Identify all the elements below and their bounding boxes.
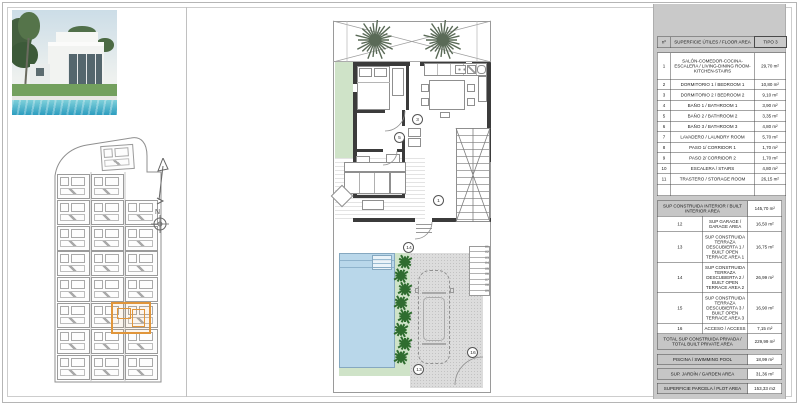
- summary-table: PISCINA / SWIMMING POOL18,99 m²: [657, 354, 782, 365]
- area-row: TOTAL SUP CONSTRUIDA PRIVADA / TOTAL BUI…: [657, 334, 782, 350]
- chair: [440, 112, 450, 118]
- built-areas-table: SUP CONSTRUIDA INTERIOR / BUILT INTERIOR…: [657, 201, 782, 350]
- area-row: 12SUP GARAGE / GARAGE AREA16,50 m²: [657, 216, 782, 232]
- wall: [353, 195, 405, 198]
- sofa-cushions: [344, 172, 390, 194]
- area-row: 8PASO 1/ CORRIDOR 11,70 m²: [657, 142, 786, 153]
- summary-table: SUPERFICIE PARCELA / PLOT AREA153,33 m2: [657, 383, 782, 394]
- pillow: [359, 68, 372, 77]
- site-plan-unit: [125, 277, 158, 302]
- site-plan-unit: [57, 303, 90, 328]
- area-row: SUP CONSTRUIDA INTERIOR / BUILT INTERIOR…: [657, 201, 782, 217]
- bed-line: [357, 82, 390, 83]
- summary-table: SUP. JARDÍN / GARDEN AREA31,36 m²: [657, 369, 782, 380]
- laundry-unit: [408, 128, 421, 137]
- wall: [353, 218, 415, 222]
- summary-tables: PISCINA / SWIMMING POOL18,99 m²SUP. JARD…: [657, 354, 782, 394]
- highlighted-unit: [111, 302, 151, 334]
- room-marker-1: 1: [433, 195, 444, 206]
- header-description: SUPERFICIE ÚTILES / FLOOR AREA: [671, 37, 755, 48]
- area-row: 2DORMITORIO 1 / BEDROOM 110,80 m²: [657, 79, 786, 90]
- area-row: 7LAVADERO / LAUNDRY ROOM5,70 m²: [657, 132, 786, 143]
- room-marker-3: 3: [412, 114, 423, 125]
- wall: [402, 110, 405, 126]
- area-row: 16ACCESO / ACCESS7,15 m²: [657, 323, 782, 334]
- column-divider-line: [186, 7, 187, 397]
- site-plan-unit: [100, 144, 135, 171]
- site-plan-unit: [91, 251, 124, 276]
- area-row: 1SALÓN-COMEDOR-COCINA-ESCALERA / LIVING-…: [657, 53, 786, 80]
- area-row: 10ESCALERA / STAIRS4,80 m²: [657, 163, 786, 174]
- wardrobe: [392, 68, 404, 96]
- site-plan-unit: [91, 226, 124, 251]
- terrace-step: [416, 228, 432, 229]
- lawn: [12, 84, 117, 96]
- plan-sheet: N: [0, 0, 800, 406]
- site-plan-unit: [57, 355, 90, 380]
- terrace-step: [416, 224, 432, 225]
- room-marker-13: 13: [413, 364, 424, 375]
- north-arrow-icon: N: [147, 158, 177, 236]
- room-marker-5: 5: [394, 132, 405, 143]
- side-garden: [335, 62, 353, 158]
- useful-areas-table: 1SALÓN-COMEDOR-COCINA-ESCALERA / LIVING-…: [657, 53, 786, 197]
- site-plan: N: [35, 132, 180, 394]
- chair: [421, 98, 429, 106]
- villa-fascia: [48, 42, 104, 46]
- floor-plan: 010203040506070809 135131416: [328, 10, 500, 400]
- sofa-back: [344, 162, 406, 172]
- site-plan-unit: [91, 200, 124, 225]
- area-row: PISCINA / SWIMMING POOL18,99 m²: [657, 354, 782, 365]
- area-row: 9PASO 2/ CORRIDOR 21,70 m²: [657, 153, 786, 164]
- room-marker-14: 14: [403, 242, 414, 253]
- chair: [467, 84, 475, 92]
- oven: [467, 65, 476, 74]
- site-plan-unit: [57, 226, 90, 251]
- terrace-step: [416, 232, 432, 233]
- header-type: TIPO 3: [755, 37, 787, 48]
- area-table-header: nº SUPERFICIE ÚTILES / FLOOR AREA TIPO 3: [657, 36, 787, 48]
- villa-glazing: [68, 54, 102, 86]
- wall: [406, 62, 409, 110]
- swimming-pool: [339, 253, 395, 368]
- villa-small-window: [36, 68, 44, 76]
- area-table-panel: nº SUPERFICIE ÚTILES / FLOOR AREA TIPO 3…: [653, 4, 786, 399]
- area-row: 15SUP CONSTRUIDA TERRAZA DESCUBIERTA 3 /…: [657, 293, 782, 324]
- header-no: nº: [657, 37, 671, 48]
- coffee-table: [362, 200, 384, 210]
- pillow: [374, 68, 387, 77]
- area-row: [657, 184, 786, 196]
- area-row: 11TRASTERO / STORAGE ROOM26,15 m²: [657, 174, 786, 185]
- site-plan-unit: [57, 251, 90, 276]
- pool-water: [12, 100, 117, 115]
- stair-step-numbers: 010203040506070809: [469, 246, 490, 296]
- car-mirror: [415, 288, 419, 293]
- site-plan-unit: [57, 174, 90, 199]
- car-mirror: [450, 288, 454, 293]
- area-row: 3DORMITORIO 2 / BEDROOM 29,10 m²: [657, 90, 786, 101]
- area-row: 13SUP CONSTRUIDA TERRAZA DESCUBIERTA 1 /…: [657, 232, 782, 263]
- area-row: 4BAÑO 1 / BATHROOM 13,90 m²: [657, 100, 786, 111]
- site-plan-unit: [57, 277, 90, 302]
- tall-cabinet: [478, 76, 487, 102]
- area-table: nº SUPERFICIE ÚTILES / FLOOR AREA TIPO 3…: [657, 36, 782, 398]
- site-plan-unit: [57, 329, 90, 354]
- wall: [353, 149, 383, 152]
- kitchen-sink: [477, 65, 486, 74]
- site-plan-unit: [125, 355, 158, 380]
- area-row: SUP. JARDÍN / GARDEN AREA31,36 m²: [657, 369, 782, 380]
- area-row: 5BAÑO 2 / BATHROOM 23,35 m²: [657, 111, 786, 122]
- site-plan-unit: [91, 277, 124, 302]
- staircase: [456, 128, 490, 222]
- area-row: 6BAÑO 3 / BATHROOM 34,80 m²: [657, 121, 786, 132]
- cooktop: [455, 65, 466, 74]
- site-plan-unit: [125, 251, 158, 276]
- site-plan-unit: [57, 200, 90, 225]
- planting-strip: [395, 253, 410, 368]
- chair: [467, 98, 475, 106]
- chair: [421, 84, 429, 92]
- wall: [353, 110, 385, 113]
- rear-garden: [333, 21, 491, 62]
- north-label: N: [155, 209, 160, 216]
- palm-tree-icon: [18, 12, 40, 40]
- area-row: SUPERFICIE PARCELA / PLOT AREA153,33 m2: [657, 383, 782, 394]
- pool-steps: [372, 255, 392, 270]
- chaise: [390, 172, 406, 194]
- site-plan-unit: [91, 174, 124, 199]
- wall: [397, 149, 403, 152]
- laundry-unit: [408, 138, 421, 147]
- site-plan-unit: [91, 355, 124, 380]
- room-marker-16: 16: [467, 347, 478, 358]
- stair-step: 09: [470, 291, 489, 295]
- villa-photo: [12, 10, 117, 115]
- dining-table: [429, 80, 465, 110]
- garden-edge-strip: [339, 368, 410, 376]
- area-row: 14SUP CONSTRUIDA TERRAZA DESCUBIERTA 2 /…: [657, 262, 782, 293]
- car-outline: [418, 270, 450, 364]
